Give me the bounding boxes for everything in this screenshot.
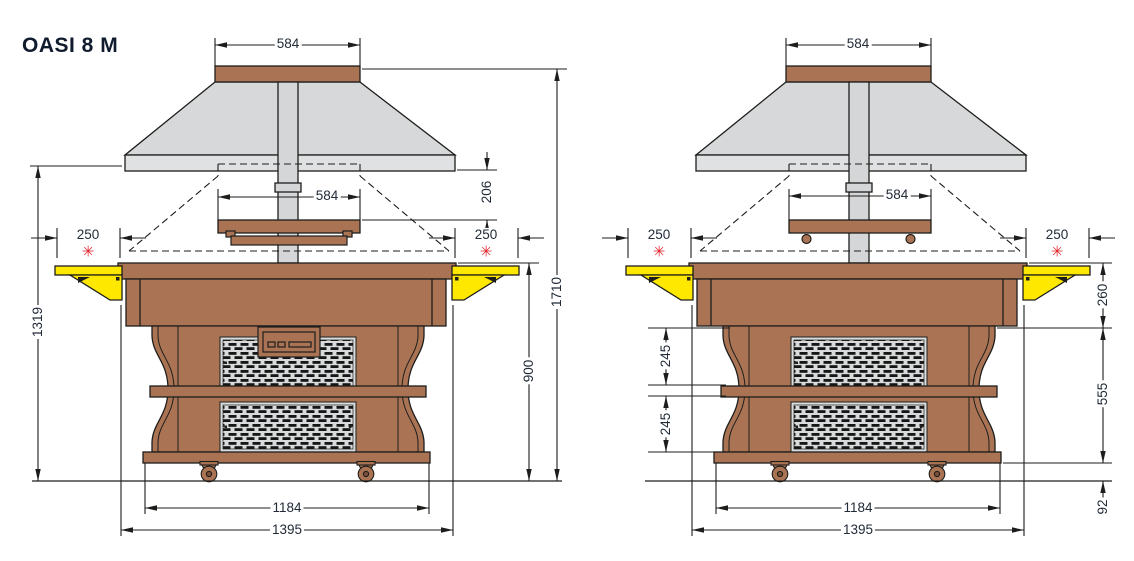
- asterisk-front-left: ✳: [82, 245, 95, 260]
- tray-slide-bracket-right: [452, 266, 519, 300]
- dim-label-hood-cap-width: 584: [275, 37, 302, 51]
- shelf-knob-right: [906, 235, 915, 244]
- control-panel: [258, 327, 320, 357]
- caster-wheel-left: [200, 462, 218, 482]
- dim-label-base-width: 1184: [270, 501, 303, 515]
- dim-label-worktop-height: 900: [522, 358, 536, 385]
- dim-label-hood-cap-width-side: 584: [845, 37, 872, 51]
- dim-label-hood-bottom-height: 1319: [31, 305, 45, 339]
- display-shelf: [218, 220, 360, 233]
- dim-label-hood-to-shelf: 206: [480, 179, 494, 206]
- shelf-knob-left: [802, 235, 811, 244]
- dim-label-tray-slide-right-side: 250: [1044, 228, 1071, 242]
- caster-wheel-right: [357, 462, 375, 482]
- technical-drawing: [0, 0, 1134, 561]
- dim-label-shelf-width-side: 584: [884, 188, 911, 202]
- tray-slide-bracket-left: [55, 266, 122, 300]
- dim-label-overall-width: 1395: [270, 523, 304, 537]
- asterisk-side-left: ✳: [653, 245, 666, 260]
- buffet-island-unit-side: [626, 66, 1090, 482]
- counter-top: [118, 263, 456, 279]
- dim-label-tray-slide-left: 250: [75, 228, 102, 242]
- dim-label-body-section-height: 555: [1096, 381, 1110, 408]
- dim-label-tray-slide-right: 250: [473, 228, 500, 242]
- dim-label-counter-section-height: 260: [1096, 282, 1110, 309]
- base-plinth: [143, 452, 430, 463]
- dim-label-shelf-width: 584: [314, 189, 341, 203]
- counter-body: [126, 279, 446, 326]
- dim-label-overall-height: 1710: [550, 275, 564, 309]
- buffet-island-unit: [55, 66, 519, 482]
- refrigeration-grille-lower: [220, 402, 356, 452]
- dim-label-base-width-side: 1184: [841, 501, 874, 515]
- asterisk-side-right: ✳: [1051, 245, 1064, 260]
- dim-label-tray-slide-left-side: 250: [646, 228, 673, 242]
- drawing-title: OASI 8 M: [22, 34, 118, 58]
- technical-drawing-canvas: OASI 8 M 584 584 206 250 ✳ 250 ✳ 1319 90…: [0, 0, 1134, 561]
- mid-band: [150, 386, 426, 397]
- column-collar: [275, 183, 301, 192]
- dim-label-caster-clearance: 92: [1096, 497, 1110, 516]
- hood-cap: [215, 66, 360, 82]
- asterisk-front-right: ✳: [480, 245, 493, 260]
- dim-label-upper-grille-height: 245: [659, 343, 673, 370]
- dim-label-lower-grille-height: 245: [659, 411, 673, 438]
- dim-label-overall-width-side: 1395: [841, 523, 875, 537]
